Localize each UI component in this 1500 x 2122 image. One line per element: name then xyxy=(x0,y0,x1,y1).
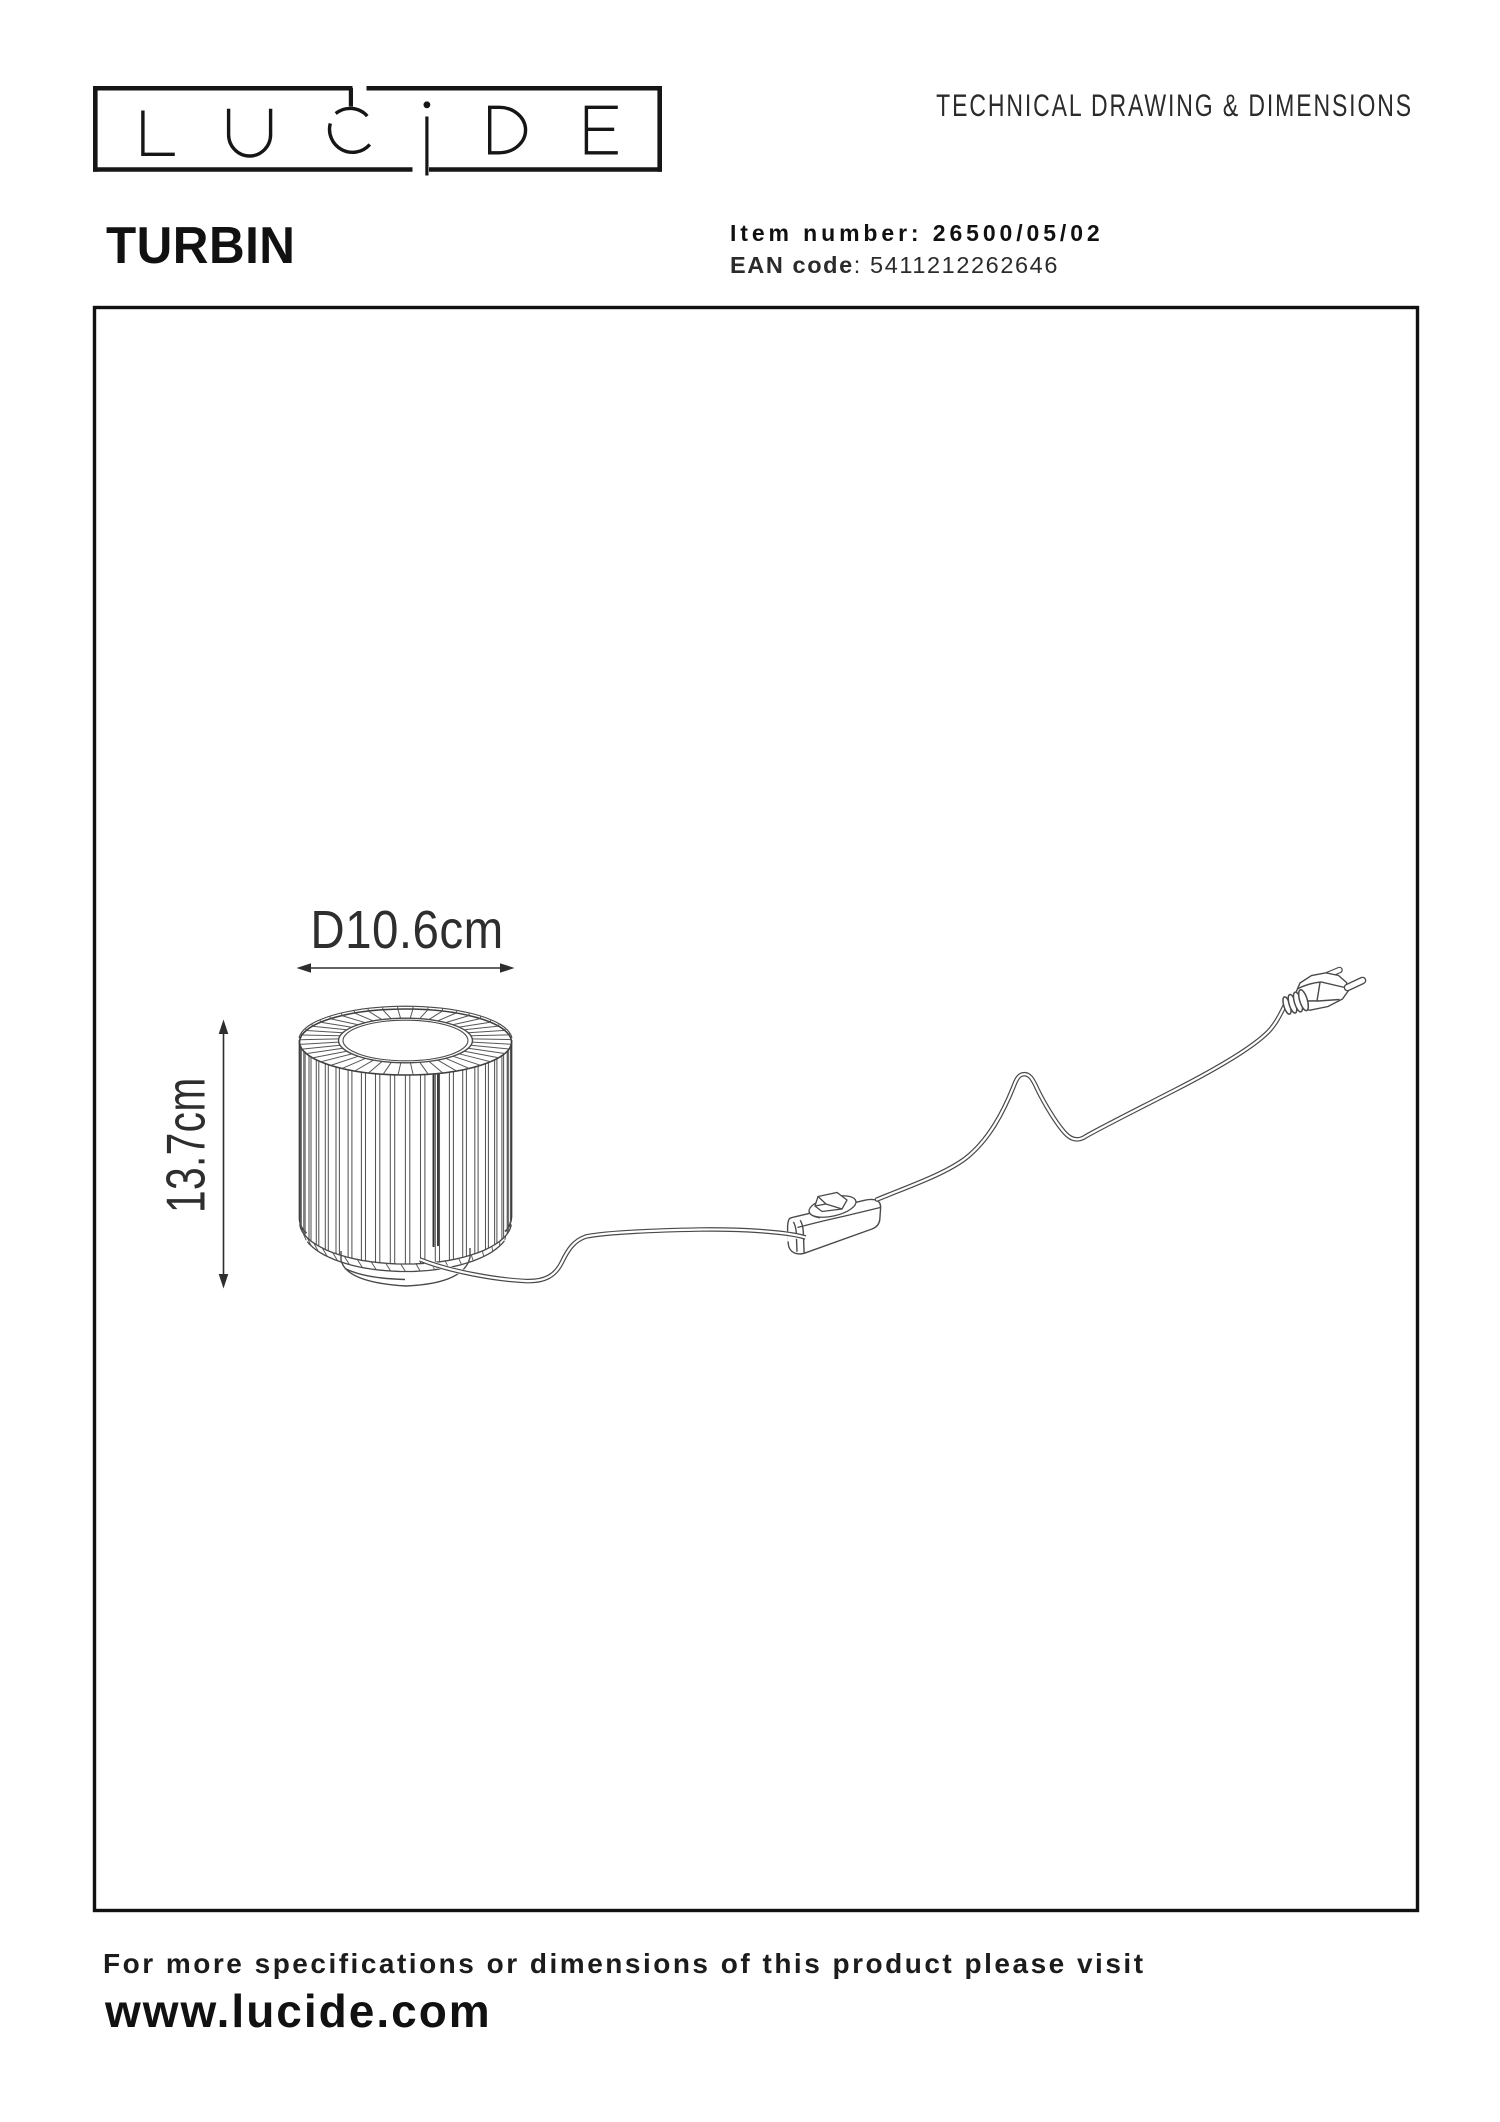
svg-text:13.7cm: 13.7cm xyxy=(156,1077,217,1213)
svg-text:D10.6cm: D10.6cm xyxy=(310,899,503,960)
